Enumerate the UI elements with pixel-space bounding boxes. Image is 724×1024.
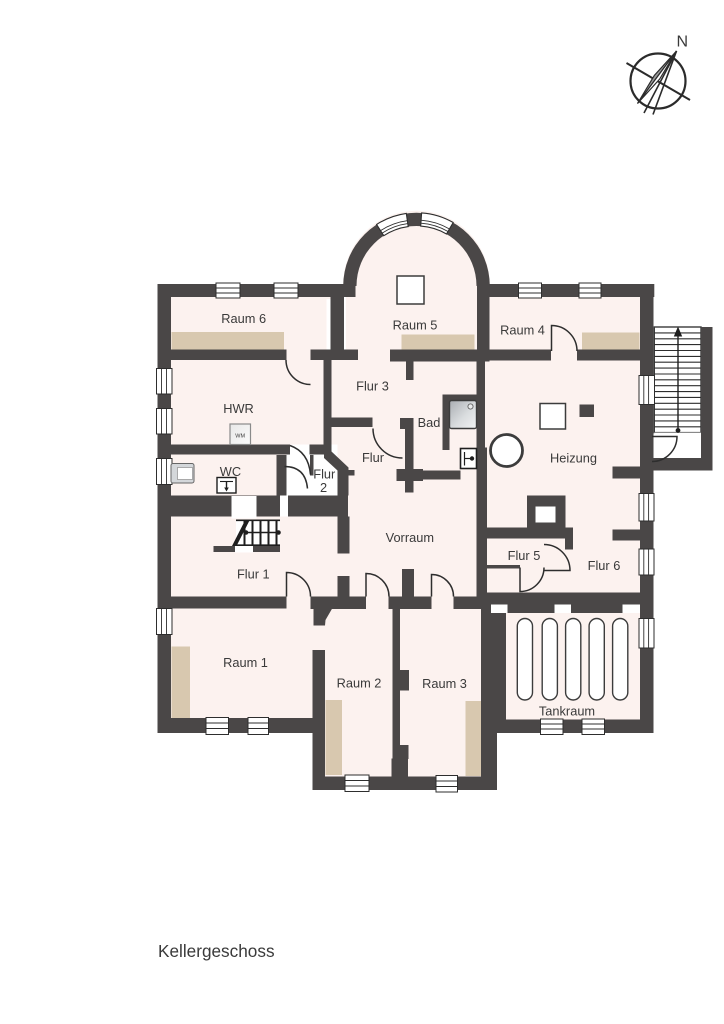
svg-text:Flur 5: Flur 5 <box>508 548 541 563</box>
svg-text:2: 2 <box>320 480 327 495</box>
svg-text:Bad: Bad <box>418 415 441 430</box>
svg-text:N: N <box>677 34 689 51</box>
svg-text:Flur: Flur <box>362 450 385 465</box>
svg-text:Raum 5: Raum 5 <box>393 318 438 333</box>
svg-text:Heizung: Heizung <box>550 451 597 466</box>
svg-text:HWR: HWR <box>223 401 254 416</box>
svg-text:Flur 3: Flur 3 <box>356 379 389 394</box>
svg-text:Tankraum: Tankraum <box>539 704 595 719</box>
svg-text:Raum 2: Raum 2 <box>337 676 382 691</box>
svg-text:Kellergeschoss: Kellergeschoss <box>158 941 275 961</box>
svg-text:Raum 3: Raum 3 <box>422 676 467 691</box>
svg-text:Flur 6: Flur 6 <box>588 558 621 573</box>
svg-text:Flur 1: Flur 1 <box>237 567 270 582</box>
svg-text:Raum 4: Raum 4 <box>500 323 545 338</box>
svg-text:Raum 1: Raum 1 <box>223 655 268 670</box>
svg-text:WM: WM <box>235 434 245 440</box>
svg-text:WC: WC <box>220 464 241 479</box>
svg-text:Raum 6: Raum 6 <box>221 311 266 326</box>
svg-text:Vorraum: Vorraum <box>386 530 434 545</box>
